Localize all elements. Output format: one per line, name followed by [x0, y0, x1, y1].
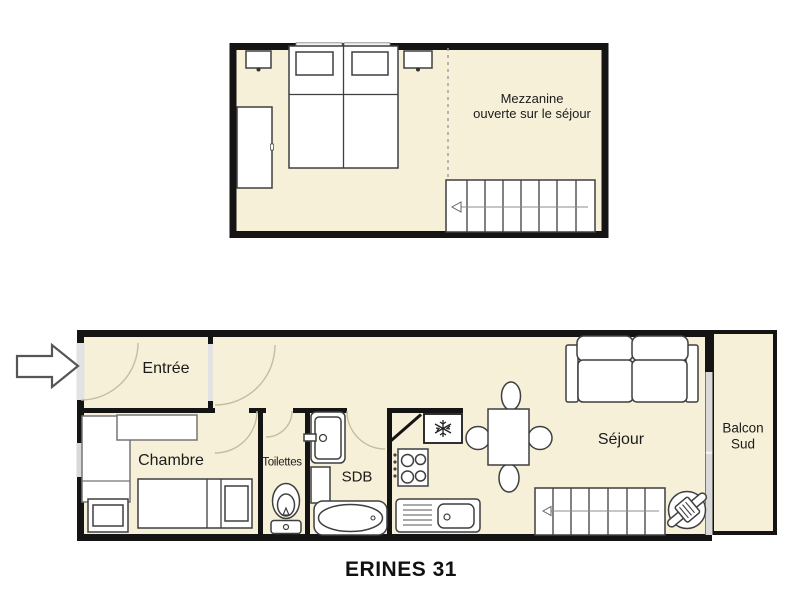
room-label-toilettes: Toilettes [262, 456, 302, 469]
entry-door-opening [77, 343, 85, 400]
room-label-entree: Entrée [142, 360, 189, 378]
bathroom-cabinet-icon [311, 467, 330, 503]
dresser-icon [117, 415, 197, 440]
mezzanine-label: Mezzanine ouverte sur le séjour [473, 92, 591, 122]
balcon-label-line2: Sud [722, 436, 763, 452]
wardrobe-icon [237, 107, 274, 188]
dining-table-icon [488, 409, 529, 465]
main-floor-plan [17, 332, 775, 538]
room-label-sejour: Séjour [598, 431, 644, 449]
mezzanine-label-line1: Mezzanine [473, 92, 591, 107]
room-label-balcon: Balcon Sud [722, 420, 763, 451]
hall-door-opening [208, 344, 213, 401]
chair-icon [499, 464, 519, 492]
toilet-icon [271, 484, 301, 534]
mezzanine-label-line2: ouverte sur le séjour [473, 107, 591, 122]
room-label-chambre: Chambre [138, 452, 204, 470]
bathtub-icon [314, 501, 387, 535]
chair-icon [466, 427, 490, 450]
nightstand-icon [88, 499, 128, 532]
entrance-arrow-icon [17, 345, 78, 387]
staircase-icon [446, 180, 595, 232]
pillow [352, 52, 388, 75]
mezzanine-plan [230, 43, 608, 238]
kitchen-sink-icon [396, 499, 480, 532]
double-bed-icon [289, 46, 398, 168]
staircase-icon [535, 488, 665, 535]
nightstand-icon [404, 51, 432, 72]
balcon-label-line1: Balcon [722, 420, 763, 436]
single-bed-icon [138, 479, 252, 528]
floor-plan-drawing [0, 0, 800, 600]
chair-icon [528, 427, 552, 450]
nightstand-icon [246, 51, 271, 72]
stove-icon [393, 449, 428, 486]
balcony-window-door-icon [706, 372, 713, 535]
room-label-sdb: SDB [342, 468, 373, 485]
floor-plan-page: Mezzanine ouverte sur le séjour Entrée C… [0, 0, 800, 600]
page-title: ERINES 31 [345, 558, 457, 582]
chair-icon [502, 382, 521, 410]
pillow [225, 486, 248, 521]
sofa-icon [566, 336, 698, 402]
pillow [296, 52, 333, 75]
fridge-snowflake-icon [424, 414, 462, 443]
